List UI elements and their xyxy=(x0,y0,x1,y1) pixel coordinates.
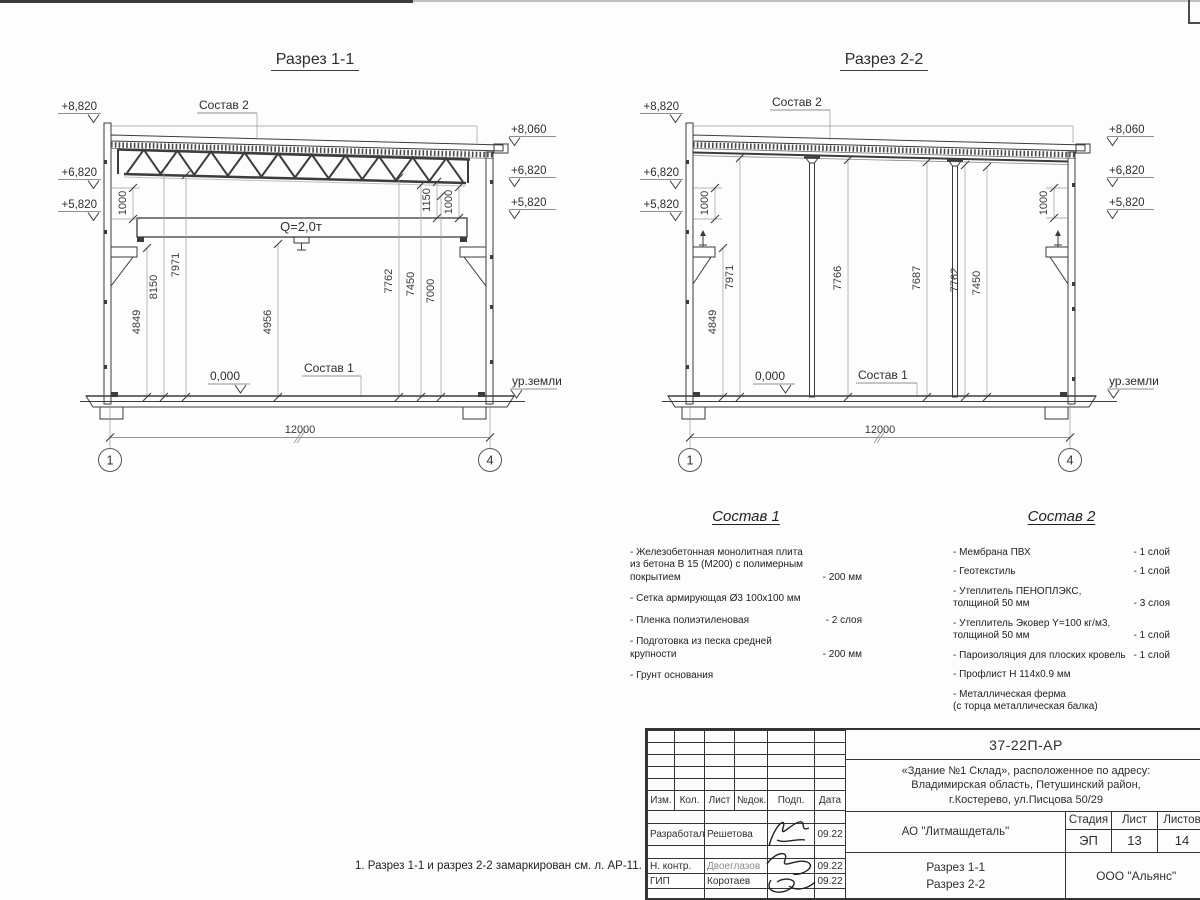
axis-bubble: 1 xyxy=(679,449,702,472)
sostav2-title: Состав 2 xyxy=(953,508,1170,527)
sheets-label: Листов xyxy=(1158,812,1200,829)
foundation xyxy=(682,407,705,419)
elevation-mark: +8,060 xyxy=(509,124,556,146)
vertical-dimension: 4849 xyxy=(131,244,151,401)
doc-number: 37-22П-АР xyxy=(846,730,1200,760)
address-line: «Здание №1 Склад», расположенное по адре… xyxy=(902,764,1151,778)
foundation xyxy=(463,407,486,419)
item-value: - 2 слоя xyxy=(820,615,862,628)
date-cell: 09.22 xyxy=(815,824,846,846)
foundation xyxy=(100,407,123,419)
vertical-dimension: 7766 xyxy=(832,156,852,401)
axis-number: 1 xyxy=(687,454,694,468)
section-1-title-text: Разрез 1-1 xyxy=(276,51,355,68)
dimension-value: 1000 xyxy=(443,190,455,214)
vertical-dimension: 7971 xyxy=(170,171,190,401)
right-wall xyxy=(486,152,493,404)
contractor-company: ООО "Альянс" xyxy=(1066,853,1200,898)
anchor-arrow-icon xyxy=(699,230,707,247)
elevation-mark: +5,820 xyxy=(1107,197,1154,219)
sostav1-reference: Состав 1 xyxy=(302,361,361,396)
sheet-subject: Разрез 1-1 Разрез 2-2 xyxy=(846,853,1066,898)
sostav1-title: Состав 1 xyxy=(630,508,862,527)
sostav2-list: Состав 2 - Мембрана ПВХ- 1 слой - Геотек… xyxy=(953,508,1170,721)
subject-line: Разрез 2-2 xyxy=(926,876,985,892)
dimension-value: 1000 xyxy=(117,191,129,215)
item-name: - Грунт основания xyxy=(630,670,713,683)
signature-developer xyxy=(763,814,815,852)
elevation-mark: +5,820 xyxy=(640,199,683,221)
elevation-mark: +8,820 xyxy=(58,101,101,123)
item-value: - 1 слой xyxy=(1127,630,1170,643)
elevation-value: +5,820 xyxy=(62,199,98,211)
zero-level-mark: 0,000 xyxy=(208,369,250,393)
dimension-value: 7000 xyxy=(425,279,437,303)
vertical-dimension: 7971 xyxy=(724,154,744,401)
axis-number: 1 xyxy=(107,454,114,468)
stage-label: Стадия xyxy=(1066,812,1112,829)
section-2-title-text: Разрез 2-2 xyxy=(845,51,924,68)
elevation-value: +6,820 xyxy=(1109,165,1145,177)
item-name: - Мембрана ПВХ xyxy=(953,547,1031,560)
item-name: - Утеплитель ПЕНОПЛЭКС, толщиной 50 мм xyxy=(953,586,1081,611)
dimension-value: 7450 xyxy=(405,272,417,296)
zero-level-mark: 0,000 xyxy=(753,369,795,393)
address-line: г.Костерево, ул.Писцова 50/29 xyxy=(949,793,1103,807)
item-name: - Металлическая ферма (с торца металличе… xyxy=(953,689,1098,714)
section-2-title: Разрез 2-2 xyxy=(840,51,928,71)
col-ndok: №док. xyxy=(735,791,768,811)
floor-slab xyxy=(662,396,1117,407)
list-item: - Утеплитель Эковер Y=100 кг/м3, толщино… xyxy=(953,618,1170,643)
list-item: - Геотекстиль- 1 слой xyxy=(953,566,1170,579)
elevation-mark: +5,820 xyxy=(509,197,556,219)
dimension-value: 8150 xyxy=(148,275,160,299)
elevation-value: +5,820 xyxy=(511,197,547,209)
sheet-note: 1. Разрез 1-1 и разрез 2-2 замаркирован … xyxy=(355,860,642,872)
item-value: - 200 мм xyxy=(817,649,862,662)
dimension-1000-left: 1000 xyxy=(111,184,140,223)
list-item: - Грунт основания xyxy=(630,670,862,683)
span-dimension: 12000 xyxy=(686,405,1074,448)
sheet-label: Лист xyxy=(1112,812,1158,829)
item-value: - 1 слой xyxy=(1127,650,1170,663)
dimension-value: 1150 xyxy=(421,188,433,212)
span-dimension: 12000 xyxy=(106,405,494,448)
elevation-mark: +5,820 xyxy=(58,199,101,221)
client-company: АО "Литмашдеталь" xyxy=(846,812,1066,852)
sostav2-reference: Состав 2 xyxy=(197,98,257,140)
interior-column xyxy=(804,158,820,398)
sostav2-reference: Состав 2 xyxy=(770,95,830,140)
col-list: Лист xyxy=(705,791,735,811)
dimension-value: 7971 xyxy=(724,265,736,289)
address-line: Владимирская область, Петушинский район, xyxy=(911,778,1140,792)
elevation-value: +8,060 xyxy=(511,124,547,136)
sostav2-ref-label: Состав 2 xyxy=(772,95,822,109)
sostav1-ref-label: Состав 1 xyxy=(858,368,908,382)
vertical-dimension: 7450 xyxy=(405,181,425,401)
elevation-value: +8,060 xyxy=(1109,124,1145,136)
left-corbel xyxy=(693,230,715,284)
elevation-mark: +6,820 xyxy=(640,167,683,189)
item-value: - 3 слоя xyxy=(1128,598,1170,611)
elevation-mark: +8,060 xyxy=(1107,124,1154,146)
dimension-value: 1000 xyxy=(699,191,711,215)
col-kol: Кол. xyxy=(675,791,705,811)
left-wall xyxy=(104,123,111,404)
sostav2-ref-label: Состав 2 xyxy=(199,98,249,112)
drawing-sheet: Разрез 1-1 xyxy=(0,0,1200,900)
ground-level-label: ур.земли xyxy=(512,374,562,388)
roof-truss xyxy=(117,150,470,187)
ground-level-mark: ур.земли xyxy=(1107,374,1159,398)
item-name: - Утеплитель Эковер Y=100 кг/м3, толщино… xyxy=(953,618,1110,643)
dimension-value: 7762 xyxy=(949,268,961,292)
sheet-value: 13 xyxy=(1112,830,1158,852)
elevation-value: +5,820 xyxy=(644,199,680,211)
wall-base-pad xyxy=(111,392,118,397)
wall-base-pad xyxy=(1060,392,1067,397)
item-name: - Геотекстиль xyxy=(953,566,1016,579)
dimension-value: 4849 xyxy=(707,310,719,334)
axis-bubble: 4 xyxy=(479,449,502,472)
col-podp: Подп. xyxy=(768,791,815,811)
dimension-value: 7450 xyxy=(971,271,983,295)
list-item: - Подготовка из песка средней крупности-… xyxy=(630,636,862,661)
axis-bubble: 4 xyxy=(1059,449,1082,472)
sostav1-list: Состав 1 - Железобетонная монолитная пли… xyxy=(630,508,862,692)
ground-level-mark: ур.земли xyxy=(510,374,562,398)
zero-level-value: 0,000 xyxy=(755,369,785,383)
item-name: - Пленка полиэтиленовая xyxy=(630,615,749,628)
dimension-value: 7762 xyxy=(383,269,395,293)
elevation-value: +6,820 xyxy=(644,167,680,179)
elevation-mark: +6,820 xyxy=(1107,165,1154,187)
elevation-mark: +6,820 xyxy=(58,167,101,189)
elevation-value: +8,820 xyxy=(644,101,680,113)
list-item: - Пароизоляция для плоских кровель- 1 сл… xyxy=(953,650,1170,663)
vertical-dimension: 8150 xyxy=(148,165,168,401)
dimension-1000-left: 1000 xyxy=(693,184,722,223)
axis-bubble: 1 xyxy=(99,449,122,472)
dimension-value: 4956 xyxy=(262,310,274,334)
dimension-value: 1000 xyxy=(1038,191,1050,215)
right-corbel xyxy=(1046,230,1068,284)
elevation-value: +6,820 xyxy=(62,167,98,179)
vertical-dimension: 7762 xyxy=(383,174,403,401)
dimension-1000-right: 1000 xyxy=(1038,184,1068,222)
dimension-value: 7971 xyxy=(170,253,182,277)
dimension-value: 4849 xyxy=(131,310,143,334)
sostav1-reference: Состав 1 xyxy=(856,368,917,396)
crane-beam: Q=2,0т xyxy=(137,218,467,250)
crane-capacity-label: Q=2,0т xyxy=(280,219,322,234)
span-value: 12000 xyxy=(865,424,896,436)
elevation-value: +8,820 xyxy=(62,101,98,113)
list-item: - Профлист Н 114х0.9 мм xyxy=(953,669,1170,682)
item-name: - Профлист Н 114х0.9 мм xyxy=(953,669,1071,682)
elevation-value: +6,820 xyxy=(511,165,547,177)
section-2-2: Разрез 2-2 xyxy=(640,51,1159,472)
role-cell: ГИП xyxy=(648,874,705,889)
left-wall xyxy=(686,123,693,404)
sheets-value: 14 xyxy=(1158,830,1200,852)
role-cell: Н. контр. xyxy=(648,859,705,874)
item-value: - 1 слой xyxy=(1127,547,1170,560)
item-name: - Сетка армирующая Ø3 100х100 мм xyxy=(630,593,801,606)
list-item: - Железобетонная монолитная плита из бет… xyxy=(630,547,862,585)
sostav1-ref-label: Состав 1 xyxy=(304,361,354,375)
title-block-right: 37-22П-АР «Здание №1 Склад», расположенн… xyxy=(845,730,1200,898)
span-value: 12000 xyxy=(285,424,316,436)
dimension-value: 7766 xyxy=(832,266,844,290)
foundation xyxy=(1045,407,1068,419)
vertical-dimension: 4956 xyxy=(262,240,282,401)
axis-number: 4 xyxy=(487,454,494,468)
item-name: - Подготовка из песка средней крупности xyxy=(630,636,772,661)
section-1-title: Разрез 1-1 xyxy=(271,51,359,71)
item-name: - Железобетонная монолитная плита из бет… xyxy=(630,547,803,585)
stage-grid: Стадия Лист Листов ЭП 13 14 xyxy=(1066,812,1200,852)
role-cell: Разработал xyxy=(648,824,705,846)
col-data: Дата xyxy=(815,791,846,811)
item-value: - 200 мм xyxy=(817,572,862,585)
elevation-mark: +8,820 xyxy=(640,101,683,123)
wall-base-pad xyxy=(693,392,700,397)
item-value: - 1 слой xyxy=(1127,566,1170,579)
right-wall xyxy=(1068,152,1075,404)
list-item: - Сетка армирующая Ø3 100х100 мм xyxy=(630,593,862,606)
vertical-dimension: 7450 xyxy=(971,163,991,401)
roof-assembly xyxy=(693,135,1090,165)
dimension-value: 7687 xyxy=(911,266,923,290)
stage-value: ЭП xyxy=(1066,830,1112,852)
dimension-1000-right: 1000 xyxy=(443,183,463,222)
crane-trolley-symbol xyxy=(294,237,309,250)
col-izm: Изм. xyxy=(648,791,675,811)
elevation-value: +5,820 xyxy=(1109,197,1145,209)
wall-base-pad xyxy=(478,392,485,397)
title-block: Изм. Кол. Лист №док. Подп. Дата Разработ… xyxy=(645,728,1200,900)
vertical-dimension: 7687 xyxy=(911,158,931,401)
list-item: - Металлическая ферма (с торца металличе… xyxy=(953,689,1170,714)
list-item: - Мембрана ПВХ- 1 слой xyxy=(953,547,1170,560)
list-item: - Пленка полиэтиленовая- 2 слоя xyxy=(630,615,862,628)
ground-level-label: ур.земли xyxy=(1109,374,1159,388)
subject-line: Разрез 1-1 xyxy=(926,859,985,875)
name-cell: Решетова xyxy=(705,824,768,846)
signature-control xyxy=(759,850,821,900)
zero-level-value: 0,000 xyxy=(210,369,240,383)
item-name: - Пароизоляция для плоских кровель xyxy=(953,650,1126,663)
elevation-mark: +6,820 xyxy=(509,165,556,187)
list-item: - Утеплитель ПЕНОПЛЭКС, толщиной 50 мм- … xyxy=(953,586,1170,611)
project-address: «Здание №1 Склад», расположенное по адре… xyxy=(846,760,1200,812)
anchor-arrow-icon xyxy=(1054,230,1062,247)
right-corbel xyxy=(460,247,486,286)
left-corbel xyxy=(111,247,137,286)
axis-number: 4 xyxy=(1067,454,1074,468)
section-1-1: Разрез 1-1 xyxy=(58,51,562,472)
